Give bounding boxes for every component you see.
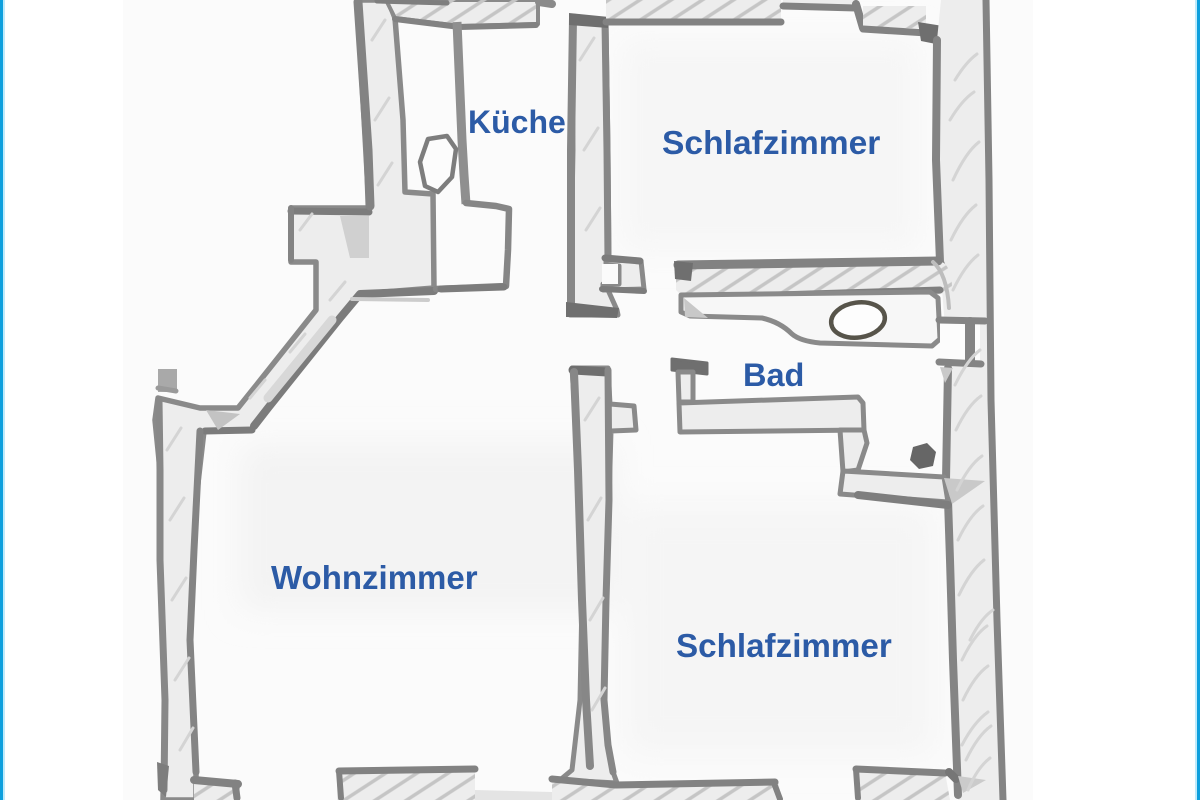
svg-text:Schlafzimmer: Schlafzimmer [662, 125, 880, 162]
svg-text:Küche: Küche [468, 104, 566, 140]
svg-text:Wohnzimmer: Wohnzimmer [271, 559, 478, 596]
svg-text:Bad: Bad [743, 357, 804, 393]
svg-text:Schlafzimmer: Schlafzimmer [676, 628, 892, 665]
